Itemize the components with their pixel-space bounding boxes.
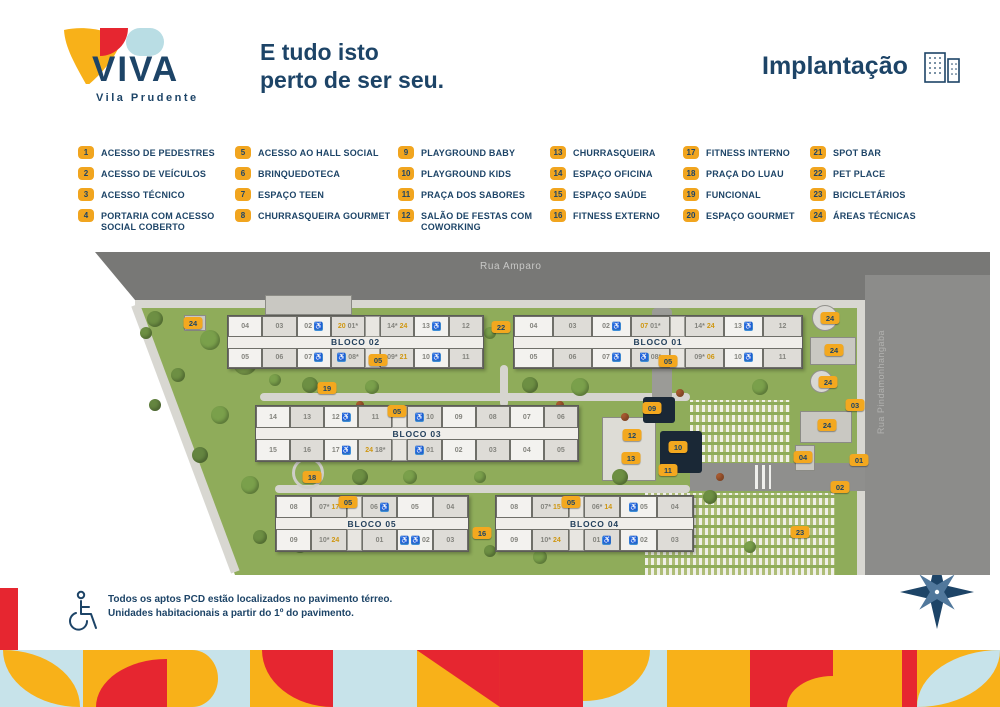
unit-number: 15 [269, 447, 277, 454]
legend-column: 17FITNESS INTERNO18PRAÇA DO LUAU19FUNCIO… [683, 146, 810, 240]
unit-number: 02 [640, 537, 648, 544]
map-marker: 05 [562, 496, 581, 508]
legend-number-badge: 8 [235, 209, 251, 222]
tree [241, 476, 259, 494]
amenity-number: 06 [707, 354, 715, 361]
unit-number: 14* [694, 323, 705, 330]
legend-item: 8CHURRASQUEIRA GOURMET [235, 209, 398, 222]
street-label-top: Rua Amparo [480, 261, 542, 272]
unit-cell: 07 [510, 406, 544, 428]
unit-number: 10 [734, 354, 742, 361]
legend-label: FITNESS INTERNO [706, 146, 790, 159]
unit-number: 13 [303, 414, 311, 421]
unit-number: 10 [426, 414, 434, 421]
unit-cell: ♿02 [620, 529, 656, 551]
map-marker: 24 [184, 317, 203, 329]
unit-cell: 12♿ [324, 406, 358, 428]
tree [716, 473, 724, 481]
legend-number-badge: 6 [235, 167, 251, 180]
unit-number: 09 [455, 414, 463, 421]
block-label: BLOCO 02 [331, 337, 380, 347]
unit-number: 07* [540, 504, 551, 511]
legend-item: 18PRAÇA DO LUAU [683, 167, 810, 180]
map-marker: 24 [819, 376, 838, 388]
block-row: 0807*1506*14♿0504 [496, 496, 693, 518]
unit-number: 02 [455, 447, 463, 454]
unit-cell: ♿♿02 [397, 529, 432, 551]
map-marker: 05 [388, 405, 407, 417]
unit-number: 11 [372, 414, 379, 421]
entry-gap [365, 316, 380, 337]
accessibility-icon: ♿ [629, 503, 638, 512]
legend-item: 5ACESSO AO HALL SOCIAL [235, 146, 398, 159]
legend-number-badge: 18 [683, 167, 699, 180]
accessibility-icon: ♿ [337, 353, 346, 362]
decor-tile [833, 650, 916, 707]
unit-cell: 05 [228, 348, 262, 369]
legend-item: 7ESPAÇO TEEN [235, 188, 398, 201]
entry-gap [670, 316, 685, 337]
amenity-number: 07 [640, 323, 648, 330]
block-row: 151617♿2418*♿0102030405 [256, 439, 578, 461]
unit-number: 03 [671, 537, 679, 544]
legend-label: SALÃO DE FESTAS COM COWORKING [421, 209, 550, 232]
unit-number: 11 [462, 354, 469, 361]
unit-cell: 02 [442, 439, 476, 461]
legend-label: PET PLACE [833, 167, 885, 180]
unit-number: 06 [557, 414, 565, 421]
tree [365, 380, 379, 394]
unit-cell: 14*24 [380, 316, 414, 337]
unit-number: 11 [779, 354, 786, 361]
unit-number: 08* [348, 354, 359, 361]
accessibility-icon: ♿ [400, 536, 409, 545]
block-corridor: BLOCO 03 [256, 428, 578, 439]
unit-cell: 10*24 [311, 529, 346, 551]
decor-tile [250, 650, 333, 707]
accessibility-icon: ♿ [640, 353, 649, 362]
accessibility-icon: ♿ [314, 322, 323, 331]
map-marker: 11 [659, 464, 678, 476]
unit-cell: ♿05 [620, 496, 656, 518]
parking-lot [690, 400, 790, 462]
unit-number: 14 [269, 414, 277, 421]
legend-column: 13CHURRASQUEIRA14ESPAÇO OFICINA15ESPAÇO … [550, 146, 683, 240]
salao-de-festas-structure [602, 417, 656, 481]
legend-number-badge: 9 [398, 146, 414, 159]
sidewalk [135, 300, 865, 308]
legend-number-badge: 15 [550, 188, 566, 201]
unit-number: 07 [523, 414, 531, 421]
unit-cell: 09 [442, 406, 476, 428]
unit-number: 02 [602, 323, 610, 330]
legend-label: CHURRASQUEIRA [573, 146, 656, 159]
legend-number-badge: 22 [810, 167, 826, 180]
entry-gap [569, 529, 584, 551]
block-row: 050607♿♿08*09*2110♿11 [228, 348, 483, 369]
unit-cell: 04 [514, 316, 553, 337]
legend-number-badge: 19 [683, 188, 699, 201]
logo-title: VIVA [92, 50, 179, 90]
accessibility-icon: ♿ [342, 413, 351, 422]
unit-number: 05 [411, 504, 419, 511]
legend-label: PRAÇA DOS SABORES [421, 188, 525, 201]
unit-number: 13 [734, 323, 742, 330]
buildings-icon [922, 48, 962, 84]
unit-number: 05 [640, 504, 648, 511]
unit-number: 01* [650, 323, 661, 330]
legend-label: ESPAÇO OFICINA [573, 167, 653, 180]
decor-tile [917, 650, 1000, 707]
tree [522, 377, 538, 393]
unit-cell: 03 [657, 529, 693, 551]
unit-cell: 06*14 [584, 496, 620, 518]
unit-number: 10 [422, 354, 430, 361]
legend-number-badge: 21 [810, 146, 826, 159]
entry-gap [392, 439, 407, 461]
unit-cell: 15 [256, 439, 290, 461]
unit-number: 04 [446, 504, 454, 511]
unit-cell: 01♿ [584, 529, 620, 551]
unit-number: 06* [592, 504, 603, 511]
accessibility-icon: ♿ [602, 536, 611, 545]
map-marker: 05 [339, 496, 358, 508]
block-row: 0910*2401♿♿0203 [276, 529, 468, 551]
amenity-number: 21 [400, 354, 408, 361]
block-corridor: BLOCO 01 [514, 337, 802, 348]
unit-cell: 16 [290, 439, 324, 461]
unit-number: 01 [593, 537, 601, 544]
unit-cell: 04 [228, 316, 262, 337]
block-bloco-05: 0807*1706♿0504BLOCO 050910*2401♿♿0203 [275, 495, 469, 552]
legend-column: 9PLAYGROUND BABY10PLAYGROUND KIDS11PRAÇA… [398, 146, 550, 240]
unit-number: 04 [671, 504, 679, 511]
decor-band [0, 650, 1000, 707]
tagline-line1: E tudo isto [260, 38, 444, 66]
unit-cell: 08 [276, 496, 311, 518]
unit-cell: 09*06 [685, 348, 724, 369]
legend-label: SPOT BAR [833, 146, 881, 159]
unit-number: 05 [530, 354, 538, 361]
legend-column: 5ACESSO AO HALL SOCIAL6BRINQUEDOTECA7ESP… [235, 146, 398, 240]
unit-cell: 10*24 [532, 529, 568, 551]
legend-label: ACESSO DE PEDESTRES [101, 146, 215, 159]
unit-cell: 06 [553, 348, 592, 369]
legend-number-badge: 16 [550, 209, 566, 222]
walkway [500, 365, 508, 407]
amenity-number: 20 [338, 323, 346, 330]
accessibility-icon: ♿ [432, 353, 441, 362]
tree [571, 378, 589, 396]
legend-label: FUNCIONAL [706, 188, 761, 201]
legend-item: 4PORTARIA COM ACESSO SOCIAL COBERTO [78, 209, 235, 232]
unit-cell: 09 [276, 529, 311, 551]
decor-tile [583, 650, 666, 707]
legend-number-badge: 12 [398, 209, 414, 222]
unit-cell: ♿01 [407, 439, 441, 461]
legend-item: 3ACESSO TÉCNICO [78, 188, 235, 201]
unit-cell: 2418* [358, 439, 392, 461]
decor-tile [500, 650, 583, 707]
unit-cell: 14 [256, 406, 290, 428]
unit-cell: 03 [476, 439, 510, 461]
legend-column: 1ACESSO DE PEDESTRES2ACESSO DE VEÍCULOS3… [78, 146, 235, 240]
unit-cell: ♿08* [331, 348, 365, 369]
legend-number-badge: 11 [398, 188, 414, 201]
legend-number-badge: 7 [235, 188, 251, 201]
unit-number: 06 [370, 504, 378, 511]
legend-label: ÁREAS TÉCNICAS [833, 209, 916, 222]
legend-label: ACESSO TÉCNICO [101, 188, 185, 201]
legend-item: 20ESPAÇO GOURMET [683, 209, 810, 222]
unit-cell: 05 [544, 439, 578, 461]
tree [703, 490, 717, 504]
unit-number: 08 [489, 414, 497, 421]
unit-cell: 10♿ [724, 348, 763, 369]
decor-tile [750, 650, 833, 707]
legend-number-badge: 4 [78, 209, 94, 222]
unit-number: 14* [387, 323, 398, 330]
unit-number: 09 [290, 537, 298, 544]
legend-number-badge: 14 [550, 167, 566, 180]
walkway [275, 485, 690, 493]
unit-number: 18* [375, 447, 386, 454]
block-label: BLOCO 03 [393, 429, 442, 439]
legend-number-badge: 10 [398, 167, 414, 180]
legend-column: 21SPOT BAR22PET PLACE23BICICLETÁRIOS24ÁR… [810, 146, 923, 240]
tree [269, 374, 281, 386]
road-rua-amparo [60, 245, 990, 300]
unit-cell: 04 [510, 439, 544, 461]
legend-label: CHURRASQUEIRA GOURMET [258, 209, 390, 222]
unit-number: 12 [332, 414, 340, 421]
map-marker: 04 [794, 451, 813, 463]
unit-cell: 06♿ [362, 496, 397, 518]
legend: 1ACESSO DE PEDESTRES2ACESSO DE VEÍCULOS3… [78, 146, 923, 240]
tree [533, 550, 547, 564]
unit-cell: 12 [449, 316, 483, 337]
street-label-right: Rua Pindamonhangaba [876, 330, 886, 434]
map-marker: 05 [659, 355, 678, 367]
tree [140, 327, 152, 339]
unit-cell: 08 [476, 406, 510, 428]
accessibility-icon: ♿ [432, 322, 441, 331]
unit-number: 12 [462, 323, 470, 330]
legend-number-badge: 1 [78, 146, 94, 159]
unit-number: 01* [348, 323, 359, 330]
accessibility-icon: ♿ [380, 503, 389, 512]
block-bloco-02: 040302♿2001*14*2413♿12BLOCO 02050607♿♿08… [227, 315, 484, 369]
site-map: Rua Amparo Rua Pindamonhangaba 040302♿20… [60, 245, 990, 580]
legend-label: PRAÇA DO LUAU [706, 167, 784, 180]
unit-number: 01 [376, 537, 384, 544]
tagline-line2: perto de ser seu. [260, 66, 444, 94]
unit-number: 03 [569, 323, 577, 330]
legend-label: ESPAÇO GOURMET [706, 209, 795, 222]
unit-cell: 03 [262, 316, 296, 337]
unit-number: 17 [332, 447, 340, 454]
tree [352, 469, 368, 485]
unit-cell: 04 [433, 496, 468, 518]
unit-number: 09 [510, 537, 518, 544]
unit-cell: 04 [657, 496, 693, 518]
legend-label: ACESSO AO HALL SOCIAL [258, 146, 379, 159]
unit-cell: 17♿ [324, 439, 358, 461]
logo-subtitle: Vila Prudente [96, 92, 199, 104]
accessibility-icon: ♿ [415, 446, 424, 455]
legend-item: 6BRINQUEDOTECA [235, 167, 398, 180]
tree [403, 470, 417, 484]
map-marker: 19 [318, 382, 337, 394]
legend-item: 17FITNESS INTERNO [683, 146, 810, 159]
amenity-number: 24 [707, 323, 715, 330]
legend-label: BICICLETÁRIOS [833, 188, 906, 201]
tree [253, 530, 267, 544]
accessibility-icon: ♿ [612, 322, 621, 331]
unit-number: 02 [304, 323, 312, 330]
unit-number: 04 [530, 323, 538, 330]
section-header: Implantação [762, 48, 962, 84]
tree [149, 399, 161, 411]
unit-number: 10* [540, 537, 551, 544]
legend-label: ESPAÇO SAÚDE [573, 188, 647, 201]
unit-number: 05 [557, 447, 565, 454]
legend-item: 1ACESSO DE PEDESTRES [78, 146, 235, 159]
block-corridor: BLOCO 02 [228, 337, 483, 348]
amenity-number: 24 [331, 537, 339, 544]
unit-cell: 09 [496, 529, 532, 551]
map-marker: 12 [623, 429, 642, 441]
unit-cell: 07♿ [592, 348, 631, 369]
map-marker: 09 [643, 402, 662, 414]
portaria-structure [265, 295, 352, 315]
unit-number: 09* [387, 354, 398, 361]
legend-item: 15ESPAÇO SAÚDE [550, 188, 683, 201]
tree [200, 330, 220, 350]
tree [474, 471, 486, 483]
block-bloco-03: 141312♿11♿1009080706BLOCO 03151617♿2418*… [255, 405, 579, 462]
map-marker: 02 [831, 481, 850, 493]
amenity-number: 24 [400, 323, 408, 330]
unit-number: 06 [276, 354, 284, 361]
unit-number: 08 [510, 504, 518, 511]
legend-item: 2ACESSO DE VEÍCULOS [78, 167, 235, 180]
legend-number-badge: 20 [683, 209, 699, 222]
unit-cell: 06 [544, 406, 578, 428]
legend-number-badge: 13 [550, 146, 566, 159]
unit-number: 08 [290, 504, 298, 511]
unit-cell: 07♿ [297, 348, 331, 369]
unit-number: 07 [304, 354, 312, 361]
legend-item: 22PET PLACE [810, 167, 923, 180]
unit-number: 04 [241, 323, 249, 330]
crosswalk [755, 465, 771, 489]
unit-number: 07* [319, 504, 330, 511]
unit-cell: 11 [763, 348, 802, 369]
map-marker: 22 [492, 321, 511, 333]
tree [171, 368, 185, 382]
accessibility-icon: ♿ [314, 353, 323, 362]
accessibility-icon: ♿ [411, 536, 420, 545]
unit-cell: 13♿ [414, 316, 448, 337]
legend-item: 19FUNCIONAL [683, 188, 810, 201]
unit-number: 13 [422, 323, 430, 330]
legend-item: 13CHURRASQUEIRA [550, 146, 683, 159]
tree [752, 379, 768, 395]
accessibility-icon: ♿ [744, 322, 753, 331]
decor-tile [667, 650, 750, 707]
legend-item: 21SPOT BAR [810, 146, 923, 159]
unit-cell: 10♿ [414, 348, 448, 369]
legend-label: PLAYGROUND BABY [421, 146, 515, 159]
legend-item: 23BICICLETÁRIOS [810, 188, 923, 201]
unit-cell: 12 [763, 316, 802, 337]
map-marker: 10 [669, 441, 688, 453]
unit-number: 16 [303, 447, 311, 454]
accessibility-icon: ♿ [342, 446, 351, 455]
unit-number: 09* [694, 354, 705, 361]
accessibility-icon: ♿ [415, 413, 424, 422]
unit-number: 03 [446, 537, 454, 544]
unit-cell: 05 [397, 496, 432, 518]
unit-cell: 11 [449, 348, 483, 369]
tree [192, 447, 208, 463]
unit-number: 06 [569, 354, 577, 361]
unit-number: 04 [523, 447, 531, 454]
unit-cell: 03 [553, 316, 592, 337]
legend-item: 16FITNESS EXTERNO [550, 209, 683, 222]
unit-cell: 06 [262, 348, 296, 369]
unit-number: 12 [779, 323, 787, 330]
decor-tile [417, 650, 500, 707]
block-row: 141312♿11♿1009080706 [256, 406, 578, 428]
map-marker: 03 [846, 399, 865, 411]
tree [744, 541, 756, 553]
accessibility-icon: ♿ [629, 536, 638, 545]
amenity-number: 15 [553, 504, 561, 511]
legend-label: ESPAÇO TEEN [258, 188, 324, 201]
block-row: 040302♿0701*14*2413♿12 [514, 316, 802, 337]
unit-cell: 08 [496, 496, 532, 518]
map-marker: 24 [821, 312, 840, 324]
page: VIVA Vila Prudente E tudo isto perto de … [0, 0, 1000, 707]
amenity-number: 24 [365, 447, 373, 454]
amenity-number: 24 [553, 537, 561, 544]
map-marker: 23 [791, 526, 810, 538]
unit-cell: 13 [290, 406, 324, 428]
unit-cell: ♿10 [407, 406, 441, 428]
unit-number: 07 [602, 354, 610, 361]
legend-number-badge: 24 [810, 209, 826, 222]
unit-cell: 0701* [631, 316, 670, 337]
accessibility-icon: ♿ [744, 353, 753, 362]
legend-number-badge: 3 [78, 188, 94, 201]
unit-cell: 03 [433, 529, 468, 551]
unit-cell: 02♿ [297, 316, 331, 337]
unit-cell: 2001* [331, 316, 365, 337]
tagline: E tudo isto perto de ser seu. [260, 38, 444, 94]
unit-number: 03 [276, 323, 284, 330]
legend-label: FITNESS EXTERNO [573, 209, 660, 222]
decor-red-bar [0, 588, 18, 650]
unit-cell: 02♿ [592, 316, 631, 337]
legend-item: 14ESPAÇO OFICINA [550, 167, 683, 180]
legend-label: BRINQUEDOTECA [258, 167, 340, 180]
legend-item: 11PRAÇA DOS SABORES [398, 188, 550, 201]
unit-cell: 13♿ [724, 316, 763, 337]
block-label: BLOCO 04 [570, 519, 619, 529]
legend-number-badge: 2 [78, 167, 94, 180]
